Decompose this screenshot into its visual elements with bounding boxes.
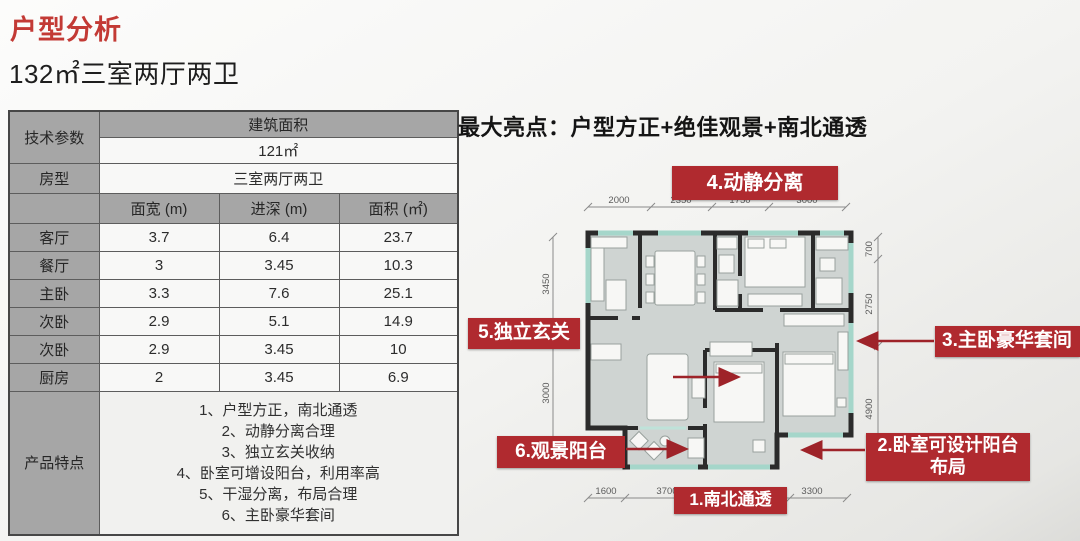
col-header-depth: 进深 (m) [219,193,339,223]
room-depth: 5.1 [219,307,339,335]
room-area: 10.3 [339,251,458,279]
room-name: 餐厅 [9,251,99,279]
room-name: 客厅 [9,223,99,251]
room-name: 主卧 [9,279,99,307]
dim-label: 2000 [608,195,629,206]
tech-params-label: 技术参数 [9,111,99,163]
table-row: 次卧 2.9 3.45 10 [9,335,458,363]
callout-north-south-transparent: 1.南北通透 [674,487,787,514]
house-type-value: 三室两厅两卫 [99,163,458,193]
room-depth: 6.4 [219,223,339,251]
page-title: 户型分析 [10,8,122,47]
room-depth: 3.45 [219,363,339,391]
room-width: 3.3 [99,279,219,307]
callout-view-balcony: 6.观景阳台 [497,436,625,468]
room-width: 2.9 [99,307,219,335]
table-row: 厨房 2 3.45 6.9 [9,363,458,391]
floorplan-panel: 最大亮点：户型方正+绝佳观景+南北通透 [458,108,1080,541]
table-row: 主卧 3.3 7.6 25.1 [9,279,458,307]
dim-label: 1600 [595,486,616,497]
room-width: 2 [99,363,219,391]
callout-bedroom-balcony-layout: 2.卧室可设计阳台 布局 [866,433,1030,481]
room-area: 10 [339,335,458,363]
room-name: 次卧 [9,335,99,363]
room-depth: 3.45 [219,251,339,279]
room-area: 25.1 [339,279,458,307]
spec-table: 技术参数 建筑面积 121㎡ 房型 三室两厅两卫 面宽 (m) 进深 (m) 面… [8,110,459,536]
empty-corner-cell [9,193,99,223]
col-header-width: 面宽 (m) [99,193,219,223]
dim-label: 700 [864,241,875,257]
built-area-header: 建筑面积 [99,111,458,137]
feature-item: 3、独立玄关收纳 [102,442,456,463]
table-row: 餐厅 3 3.45 10.3 [9,251,458,279]
dim-label: 3300 [801,486,822,497]
feature-item: 6、主卧豪华套间 [102,505,456,526]
dim-label: 3000 [541,382,552,403]
feature-item: 5、干湿分离，布局合理 [102,484,456,505]
callout-master-luxury-suite: 3.主卧豪华套间 [935,326,1080,357]
table-row: 客厅 3.7 6.4 23.7 [9,223,458,251]
callout-line: 2.卧室可设计阳台 [877,435,1018,457]
dim-label: 3450 [541,273,552,294]
dim-label: 2750 [864,293,875,314]
features-list: 1、户型方正，南北通透 2、动静分离合理 3、独立玄关收纳 4、卧室可增设阳台，… [99,391,458,535]
room-width: 2.9 [99,335,219,363]
room-width: 3 [99,251,219,279]
callout-dynamic-static-separation: 4.动静分离 [672,166,838,200]
house-type-label: 房型 [9,163,99,193]
table-row: 次卧 2.9 5.1 14.9 [9,307,458,335]
room-name: 厨房 [9,363,99,391]
room-area: 23.7 [339,223,458,251]
room-width: 3.7 [99,223,219,251]
dim-label: 4900 [864,398,875,419]
callout-line: 布局 [930,457,966,479]
room-depth: 7.6 [219,279,339,307]
room-name: 次卧 [9,307,99,335]
page-subtitle: 132㎡三室两厅两卫 [9,54,239,91]
room-depth: 3.45 [219,335,339,363]
built-area-value: 121㎡ [99,137,458,163]
feature-item: 4、卧室可增设阳台，利用率高 [102,463,456,484]
features-label: 产品特点 [9,391,99,535]
feature-item: 1、户型方正，南北通透 [102,400,456,421]
room-area: 14.9 [339,307,458,335]
room-area: 6.9 [339,363,458,391]
feature-item: 2、动静分离合理 [102,421,456,442]
col-header-area: 面积 (㎡) [339,193,458,223]
callout-independent-foyer: 5.独立玄关 [468,318,580,349]
